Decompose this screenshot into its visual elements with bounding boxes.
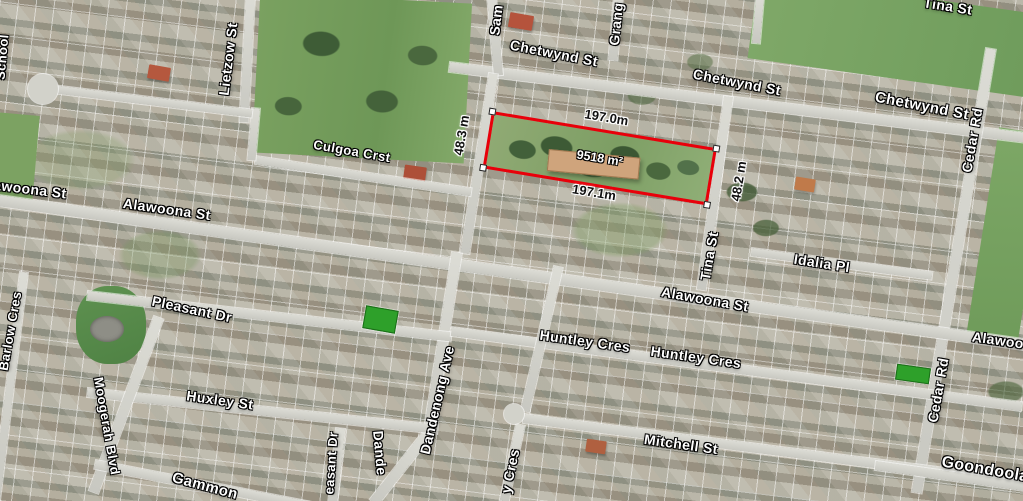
roof-red-1 <box>508 12 534 31</box>
parcel-corner-marker-bl[interactable] <box>479 164 487 172</box>
roof-orange-6 <box>794 177 816 193</box>
street-label-chetwynd-st-1: Chetwynd St <box>509 37 600 70</box>
street-label-school-partial: School <box>0 34 11 81</box>
parcel-corner-marker-br[interactable] <box>703 201 711 209</box>
parcel-corner-marker-tr[interactable] <box>712 145 720 153</box>
street-label-grange-partial: Grang <box>606 2 626 47</box>
street-label-lietzow-st: Lietzow St <box>216 22 241 97</box>
roof-rust-3 <box>585 439 607 455</box>
road-huxley-st <box>87 388 438 434</box>
roof-red-4 <box>147 64 171 82</box>
park-top-center <box>252 0 472 163</box>
street-label-dande-partial: Dande <box>370 430 390 476</box>
street-label-sam-partial: Sam <box>486 4 506 37</box>
cul-de-sac <box>28 74 58 104</box>
street-label-gammon-partial: Gammon <box>170 469 240 501</box>
parcel-corner-marker-tl[interactable] <box>488 108 496 116</box>
roundabout <box>504 404 524 424</box>
street-label-idalia-pl: Idalia Pl <box>793 251 851 276</box>
parcel-width-right-label: 48.2 m <box>727 160 748 202</box>
street-label-dandenong-ave: Dandenong Ave <box>417 344 457 455</box>
road-lietzow-st <box>239 0 255 122</box>
parcel-length-top-label: 197.0m <box>584 106 630 128</box>
highlighted-lot-2[interactable] <box>895 364 931 385</box>
street-label-y-cres-partial: y Cres <box>497 447 522 495</box>
pond <box>90 316 124 342</box>
aerial-map-canvas[interactable]: 197.0m 197.1m 48.3 m 48.2 m 9518 m² Chet… <box>0 0 1023 501</box>
